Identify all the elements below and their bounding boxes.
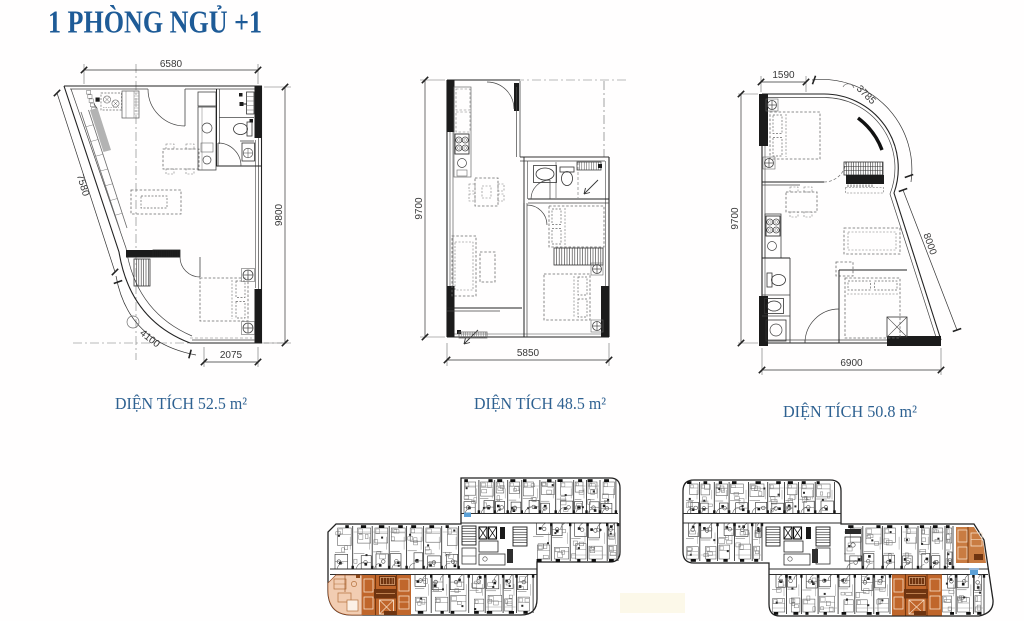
svg-text:2075: 2075 xyxy=(220,350,243,361)
svg-text:DIỆN TÍCH 48.5 m²: DIỆN TÍCH 48.5 m² xyxy=(474,394,606,413)
svg-text:DIỆN TÍCH 50.8 m²: DIỆN TÍCH 50.8 m² xyxy=(783,402,917,421)
svg-text:9700: 9700 xyxy=(730,207,741,230)
svg-text:9800: 9800 xyxy=(274,203,285,226)
svg-text:9700: 9700 xyxy=(414,197,425,220)
svg-text:1 PHÒNG NGỦ +1: 1 PHÒNG NGỦ +1 xyxy=(48,4,262,40)
svg-text:6580: 6580 xyxy=(160,59,183,70)
svg-text:5850: 5850 xyxy=(517,348,540,359)
svg-text:DIỆN TÍCH 52.5 m²: DIỆN TÍCH 52.5 m² xyxy=(115,394,247,413)
svg-text:1590: 1590 xyxy=(772,70,795,81)
svg-text:6900: 6900 xyxy=(840,358,863,369)
